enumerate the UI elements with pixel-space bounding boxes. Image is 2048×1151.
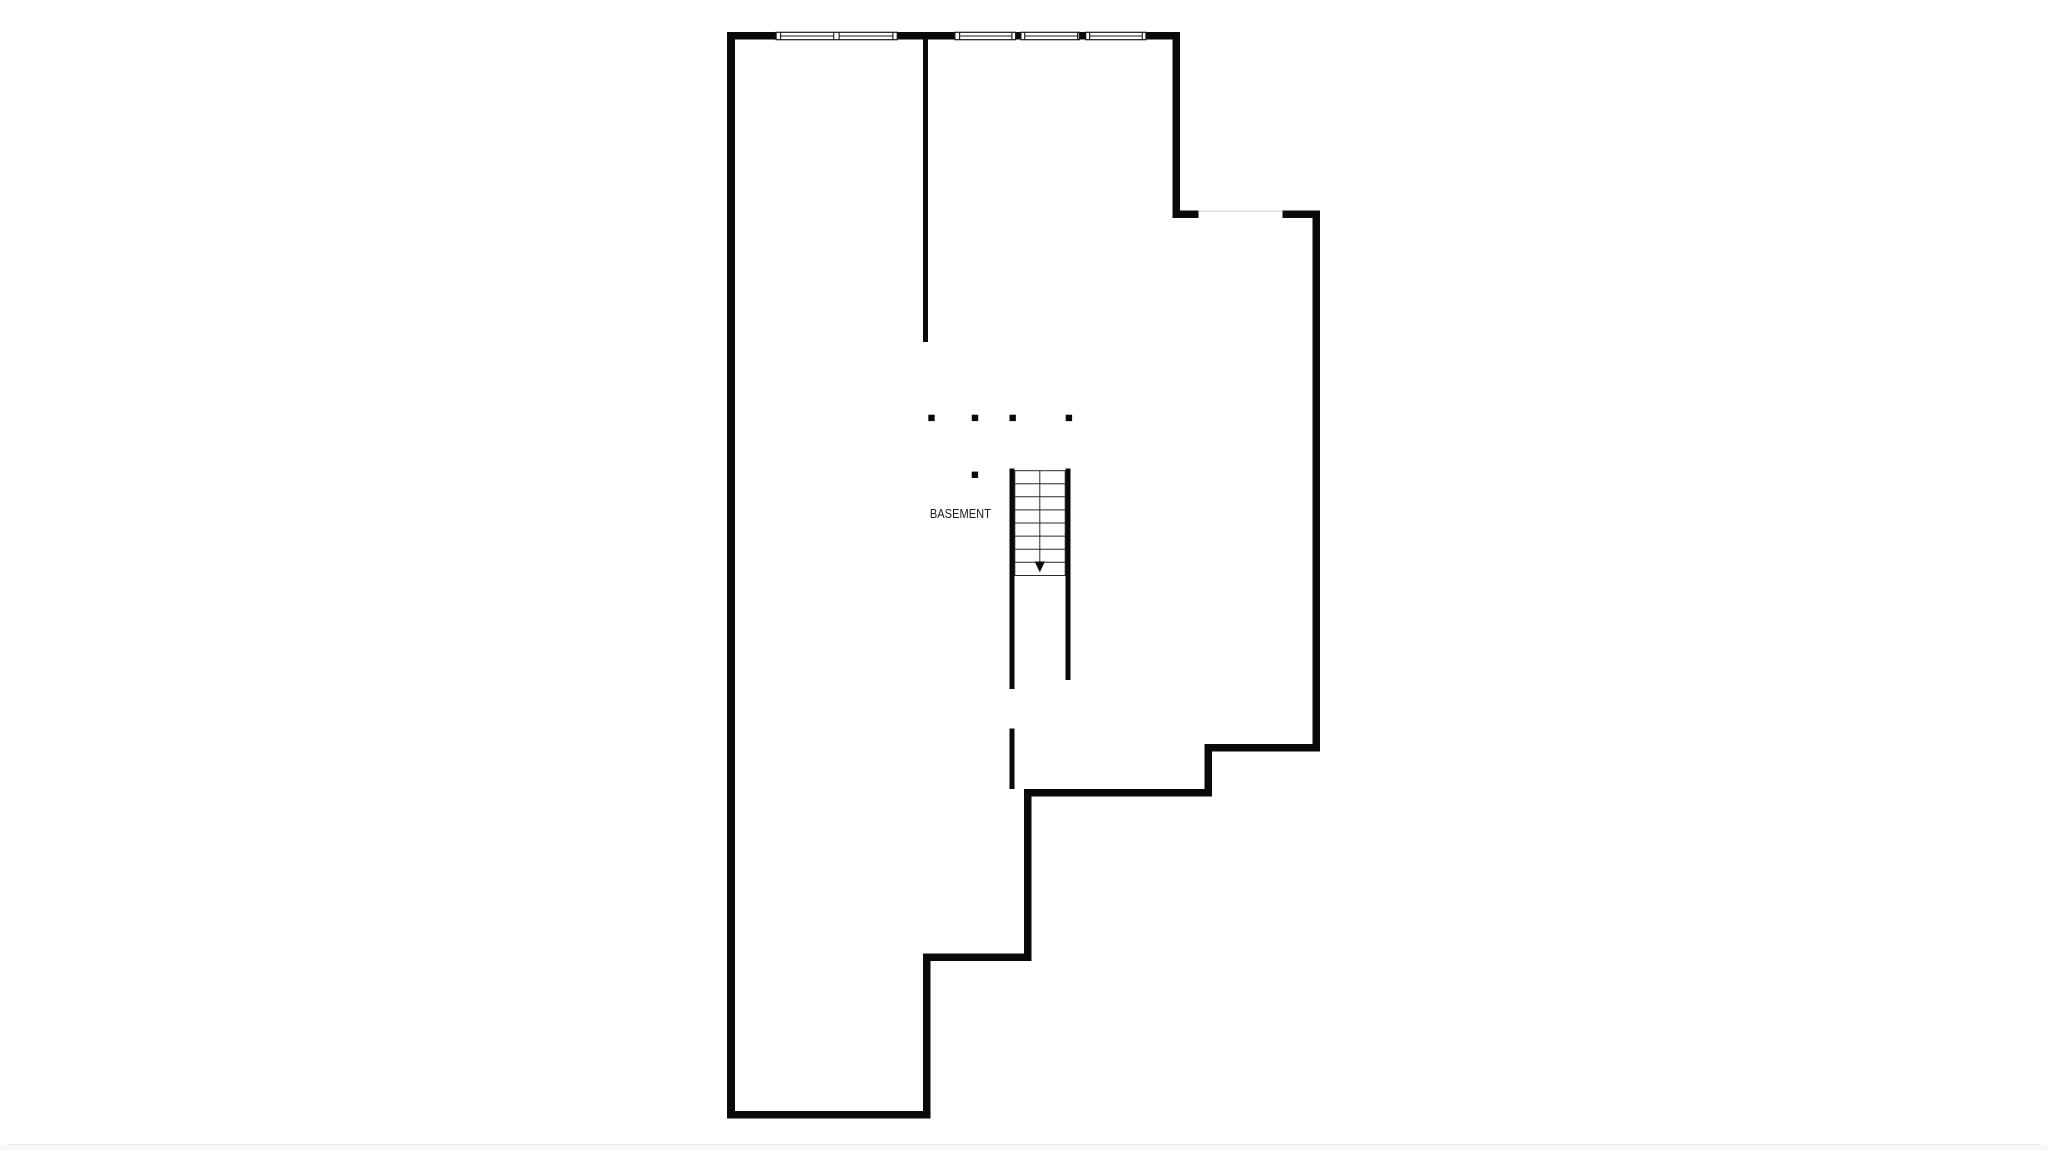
svg-text:BASEMENT: BASEMENT [930,506,991,521]
